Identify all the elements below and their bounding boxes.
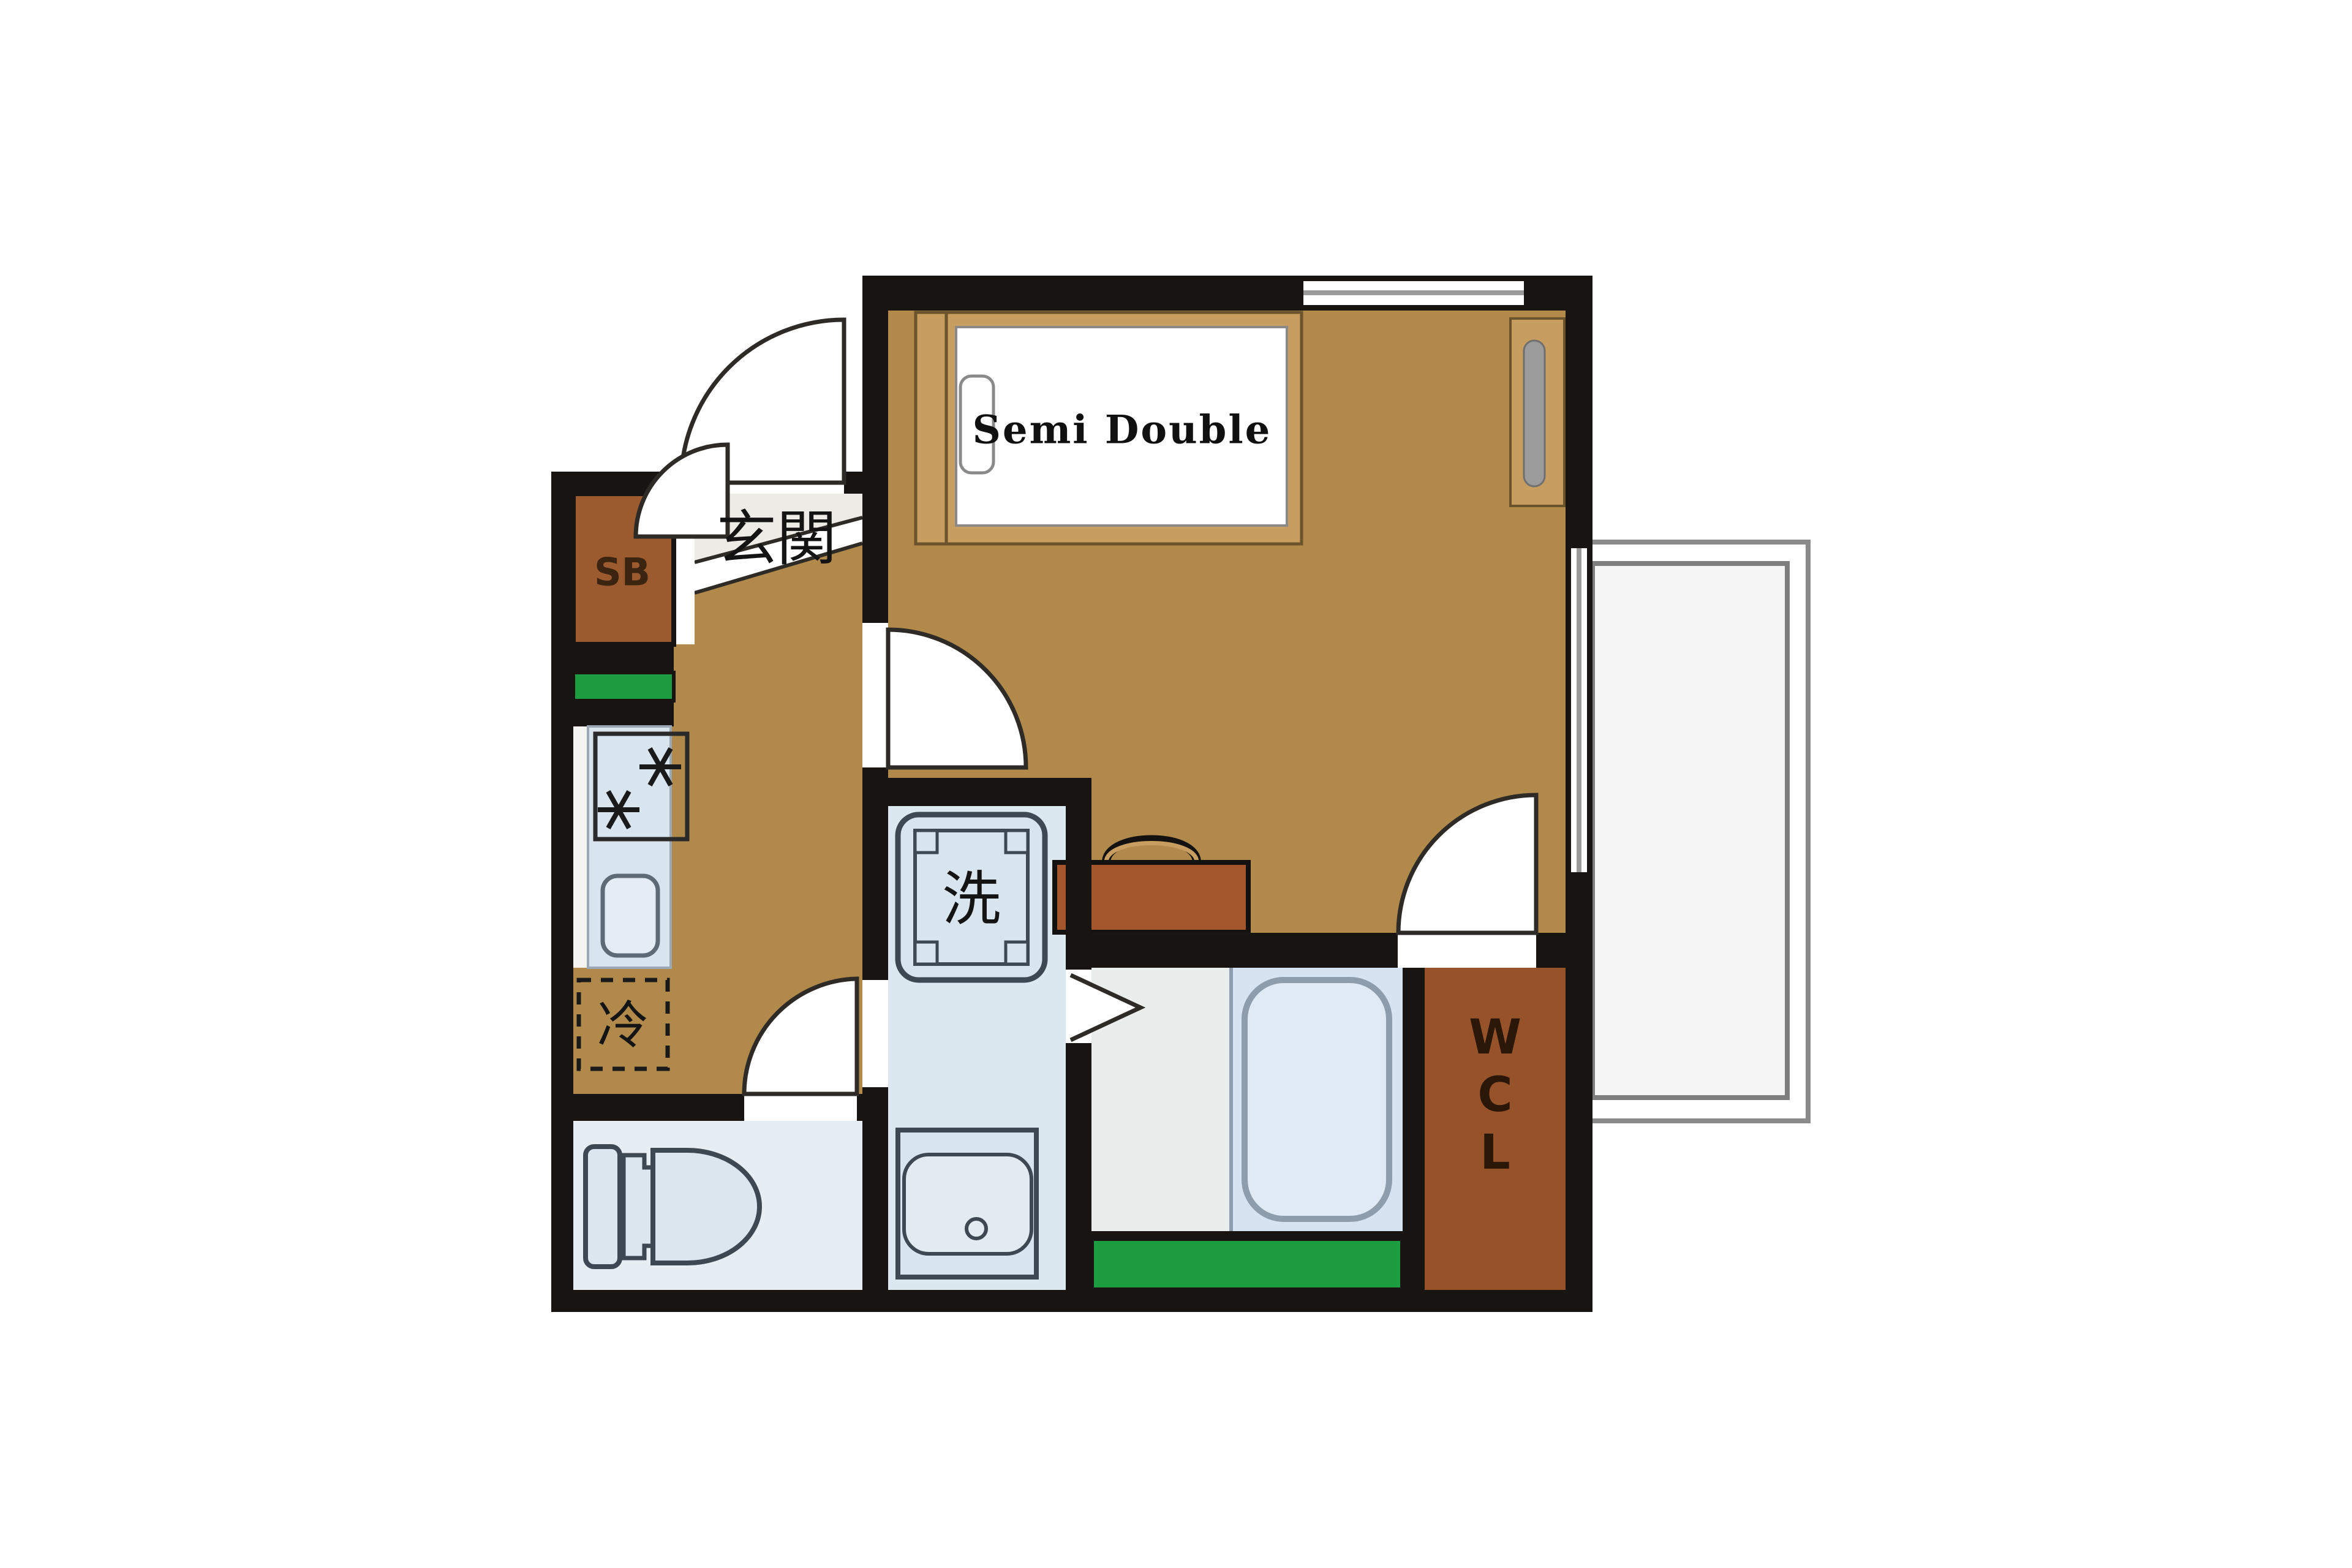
wcl-letter-w: W: [1469, 1010, 1521, 1065]
entrance-label: 玄関: [717, 504, 837, 574]
shoe-box-label: SB: [594, 550, 650, 595]
wall-left: [551, 472, 573, 1312]
wash-basin-icon: [904, 1155, 1031, 1254]
wcl-letter-l: L: [1480, 1125, 1510, 1180]
floor-plan: Semi Double: [0, 0, 2352, 1568]
wardrobe-handle-icon: [1524, 341, 1545, 486]
bath-green-strip: [1091, 1238, 1403, 1290]
washroom-door-opening: [862, 980, 888, 1087]
wcl-door-opening: [1398, 933, 1536, 968]
bathtub-icon: [1245, 980, 1389, 1219]
balcony: [1593, 542, 1808, 1121]
wall-bottom: [551, 1290, 1593, 1312]
top-window: [1303, 276, 1524, 311]
washing-machine-label: 洗: [942, 865, 1001, 933]
refrigerator-label: 冷: [597, 995, 649, 1055]
genkan-closet-door-arc: [636, 445, 728, 537]
toilet-door-opening: [744, 1094, 857, 1121]
wall-wcl-left: [1403, 968, 1425, 1290]
bedroom-door-opening: [862, 623, 888, 767]
wcl-letter-c: C: [1477, 1068, 1512, 1123]
toilet: [586, 1147, 759, 1267]
toilet-seat-icon: [624, 1155, 653, 1258]
toilet-tank-icon: [586, 1147, 620, 1267]
wall-bedroom-washroom: [862, 778, 1091, 806]
green-lower-wall: [573, 701, 674, 726]
balcony-deck: [1593, 563, 1787, 1098]
bed-size-label: Semi Double: [973, 407, 1272, 453]
kitchen-sink-icon: [603, 876, 658, 956]
counter-back-strip: [573, 726, 588, 968]
right-window: [1566, 548, 1593, 872]
entrance-green-strip: [573, 673, 674, 701]
